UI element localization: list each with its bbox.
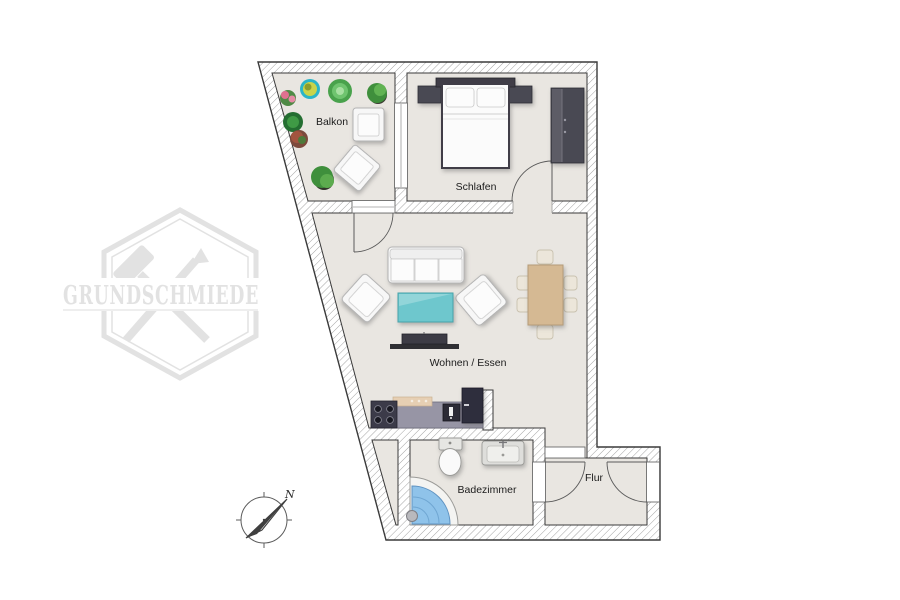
- dining-chair: [537, 250, 553, 264]
- toilet-icon: [439, 438, 462, 476]
- floor-plan-page: GRUNDSCHMIEDE: [0, 0, 900, 600]
- plant-icon: [300, 79, 320, 99]
- hallway-passage-threshold: [545, 447, 585, 458]
- bedroom-furniture: [418, 78, 584, 168]
- double-bed: [442, 84, 509, 168]
- plant-icon: [283, 112, 303, 132]
- coffee-table: [398, 293, 453, 322]
- hallway-label: Flur: [585, 472, 604, 484]
- balcony-chair: [353, 108, 384, 141]
- dining-table: [528, 265, 563, 325]
- tv-screen: [402, 334, 447, 344]
- pillow-left: [446, 88, 474, 107]
- brand-watermark: GRUNDSCHMIEDE: [58, 210, 264, 378]
- shower-head-icon: [407, 511, 418, 522]
- north-arrow-icon: [246, 499, 287, 538]
- living-label: Wohnen / Essen: [430, 357, 507, 369]
- pillow-right: [477, 88, 505, 107]
- plant-icon: [280, 90, 296, 106]
- bathroom-label: Badezimmer: [458, 484, 517, 496]
- stove-icon: [371, 401, 397, 428]
- hallway-floor: [545, 458, 647, 525]
- kitchen-sink-icon: [443, 404, 460, 421]
- nightstand-right: [509, 86, 532, 103]
- balcony-label: Balkon: [316, 116, 348, 128]
- floor-plan-canvas: GRUNDSCHMIEDE: [0, 0, 900, 600]
- dining-chair: [537, 325, 553, 339]
- sofa: [388, 247, 464, 283]
- bedroom-balcony-window: [395, 103, 408, 188]
- dining-chair: [564, 298, 577, 312]
- compass-rose: N: [236, 488, 295, 548]
- bedroom-label: Schlafen: [456, 181, 497, 193]
- tv-shelf: [390, 344, 459, 349]
- fridge-icon: [462, 388, 483, 423]
- wardrobe: [551, 88, 584, 163]
- nightstand-left: [418, 86, 441, 103]
- dining-chair: [564, 276, 577, 290]
- plant-icon: [328, 79, 352, 103]
- watermark-brand-text: GRUNDSCHMIEDE: [63, 281, 259, 311]
- kitchen-wall-stub: [483, 390, 493, 430]
- washbasin-icon: [482, 441, 524, 465]
- plant-icon: [290, 130, 308, 148]
- compass-north-label: N: [284, 488, 295, 501]
